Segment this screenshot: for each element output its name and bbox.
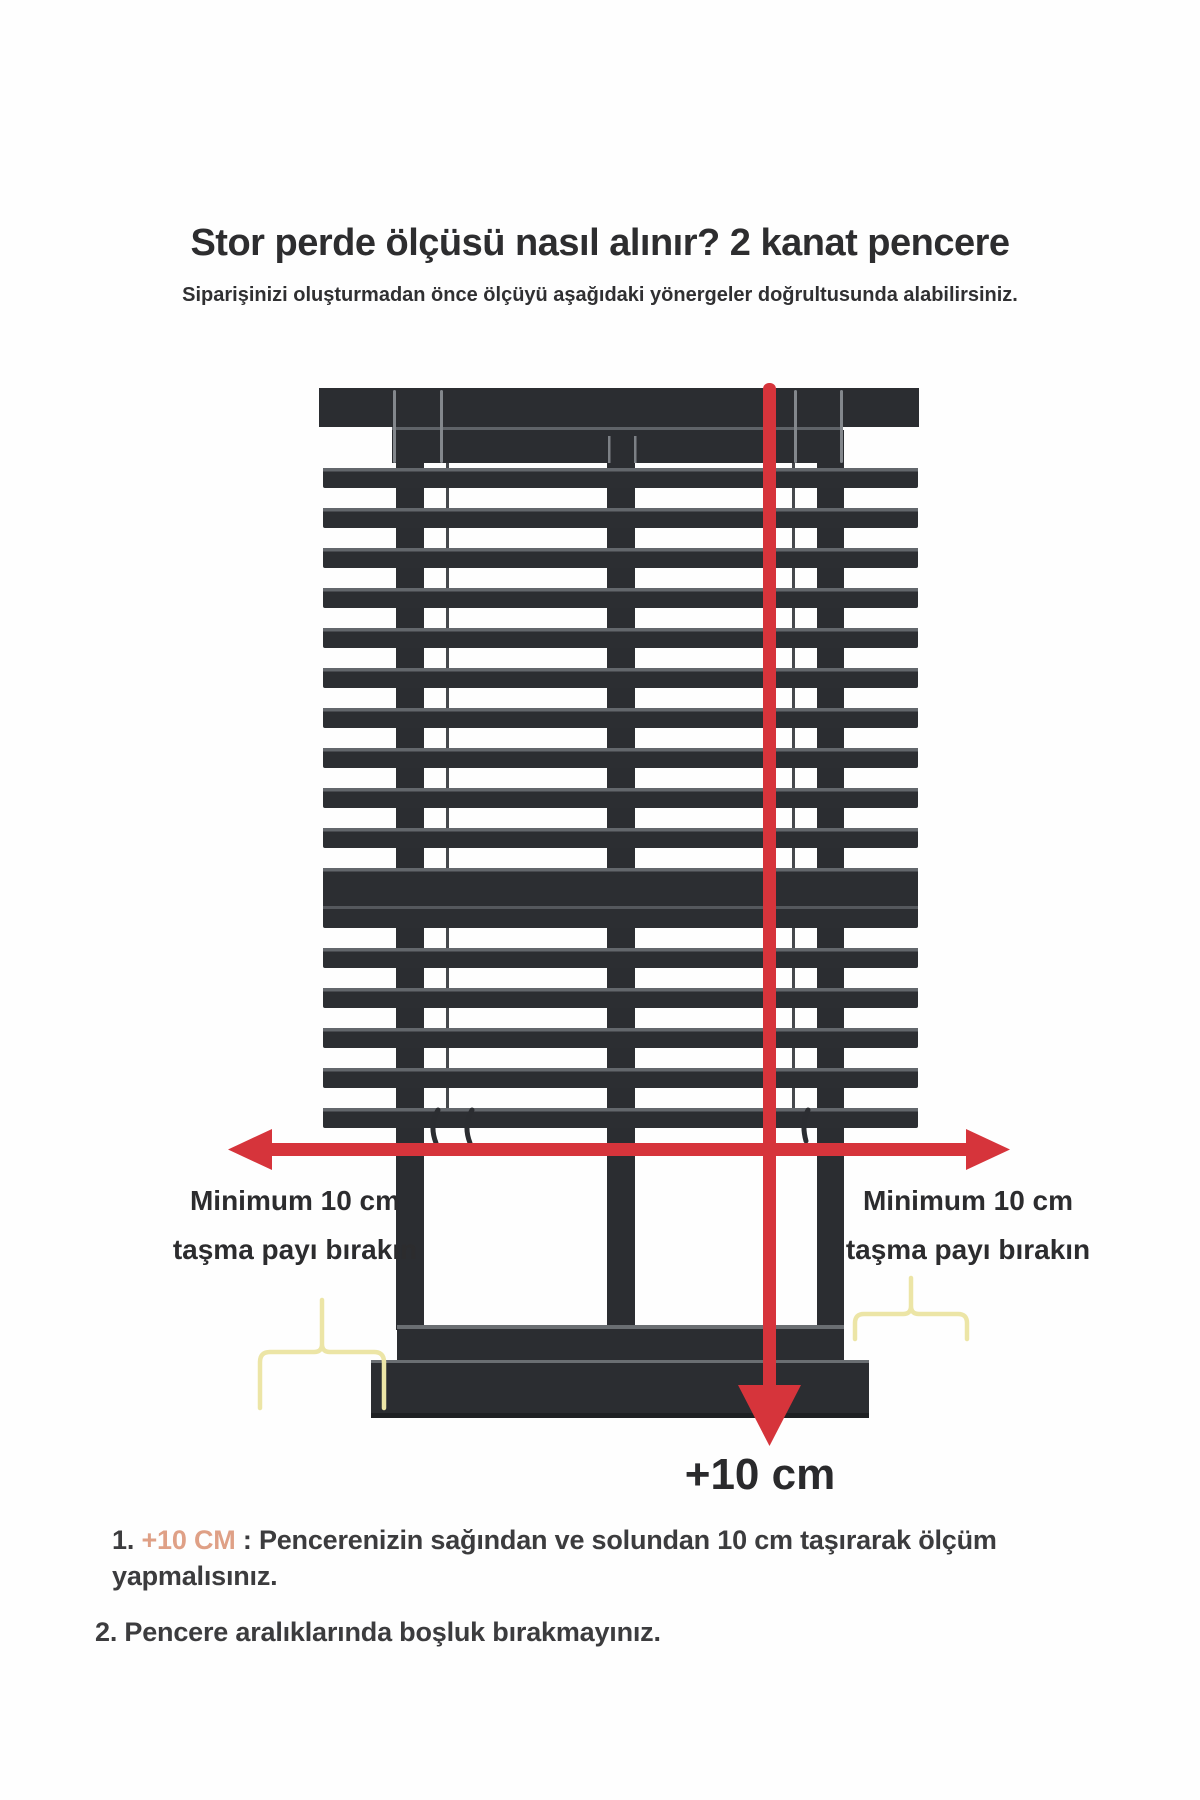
- frame-outline-1: [393, 390, 396, 463]
- mullion-outline-1: [608, 436, 611, 463]
- footer-1-highlight: +10 CM: [141, 1525, 235, 1555]
- mullion-outline-2: [634, 436, 637, 463]
- blind-slat-edge: [323, 468, 918, 472]
- blind-slats: [323, 468, 918, 1128]
- right-overflow-label: Minimum 10 cm taşma payı bırakın: [788, 1176, 1148, 1274]
- blind-headrail: [319, 388, 919, 427]
- blind-slat-edge: [323, 748, 918, 752]
- left-overflow-label: Minimum 10 cm taşma payı bırakın: [115, 1176, 475, 1274]
- left-overflow-bracket: [260, 1300, 384, 1408]
- width-arrow-right-head: [966, 1129, 1010, 1170]
- width-arrow-left-head: [228, 1129, 272, 1170]
- blind-slat-edge: [323, 628, 918, 632]
- window-bottom-rail-edge: [397, 1325, 844, 1329]
- right-overflow-label-line1: Minimum 10 cm: [788, 1176, 1148, 1225]
- blind-slat-edge: [323, 1108, 918, 1112]
- footer-1-number: 1.: [112, 1525, 134, 1555]
- left-overflow-label-line2: taşma payı bırakın: [115, 1225, 475, 1274]
- frame-outline-4: [840, 390, 843, 463]
- window-sill-edge: [371, 1360, 869, 1363]
- blind-slat-edge: [323, 708, 918, 712]
- left-overflow-label-line1: Minimum 10 cm: [115, 1176, 475, 1225]
- blind-slat-edge: [323, 828, 918, 832]
- blind-slat-edge: [323, 548, 918, 552]
- blind-slat-edge: [323, 508, 918, 512]
- window-sill-shadow: [371, 1413, 869, 1418]
- width-arrow-body: [252, 1143, 988, 1156]
- footer-instruction-2: 2. Pencere aralıklarında boşluk bırakmay…: [95, 1614, 1135, 1650]
- footer-1-separator: :: [236, 1525, 259, 1555]
- blind-slat-edge: [323, 788, 918, 792]
- blind-slat-edge: [323, 948, 918, 952]
- blind-slat-seam: [323, 906, 918, 909]
- height-measure-label: +10 cm: [610, 1450, 910, 1500]
- right-overflow-label-line2: taşma payı bırakın: [788, 1225, 1148, 1274]
- blind-slat-edge: [323, 1068, 918, 1072]
- height-arrow-body: [763, 383, 776, 1395]
- footer-instruction-1: 1. +10 CM : Pencerenizin sağından ve sol…: [112, 1522, 1152, 1594]
- blind-slat-edge: [323, 988, 918, 992]
- blind-slat-edge: [323, 668, 918, 672]
- blind-slat-edge: [323, 588, 918, 592]
- blind-slat-edge: [323, 868, 918, 872]
- right-overflow-bracket: [855, 1278, 967, 1339]
- blind-slat: [323, 868, 918, 928]
- infographic-canvas: Stor perde ölçüsü nasıl alınır? 2 kanat …: [0, 0, 1200, 1800]
- blind-slat-edge: [323, 1028, 918, 1032]
- frame-outline-2: [440, 390, 443, 463]
- frame-outline-3: [794, 390, 797, 463]
- window-bottom-rail: [397, 1325, 844, 1362]
